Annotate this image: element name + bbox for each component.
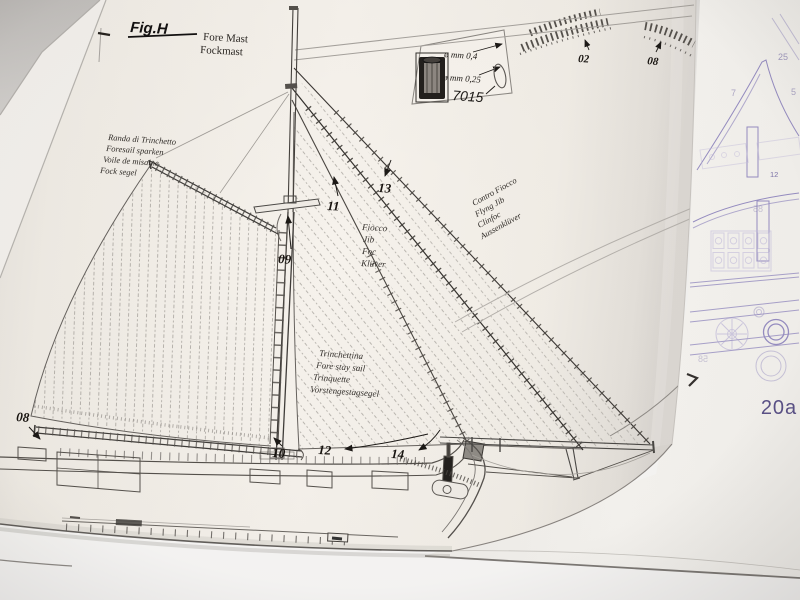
jib-name-fr: Foc	[361, 246, 377, 257]
callout-stay-inner: 11	[327, 198, 340, 214]
part-label-25: 25	[778, 52, 788, 62]
part-label-5: 5	[791, 87, 796, 97]
mirrored-label-58: 58	[698, 354, 708, 364]
mast-title-line2: Fockmast	[200, 44, 243, 58]
mast-title-line1: Fore Mast	[203, 31, 248, 45]
callout-boom-inset: 08	[647, 55, 660, 68]
mirrored-label-85: 85	[753, 204, 763, 214]
thread-part-number: 7015	[452, 87, 484, 105]
callout-boom-end: 08	[16, 409, 31, 425]
part-label-12: 12	[770, 170, 778, 179]
jib-name-it: Fiocco	[361, 222, 388, 233]
jib-name-de: Klüver	[360, 258, 386, 269]
callout-jib-tack: 14	[391, 446, 405, 462]
part-label-7: 7	[731, 88, 736, 98]
callout-mast-foot: 10	[272, 445, 286, 461]
callout-staysail-tack: 12	[318, 442, 332, 458]
ships-wheel-outline	[716, 318, 748, 350]
callout-stay-outer: 13	[378, 180, 392, 196]
callout-gaff-inset: 02	[578, 53, 590, 66]
plan-photo: 20a 25 7 5 12 85 58 Fig.H Fore Mast	[0, 0, 800, 600]
callout-mast-cap: 09	[278, 251, 292, 267]
parts-sheet-number: 20a	[761, 397, 797, 419]
jib-name-en: Jib	[363, 234, 375, 245]
